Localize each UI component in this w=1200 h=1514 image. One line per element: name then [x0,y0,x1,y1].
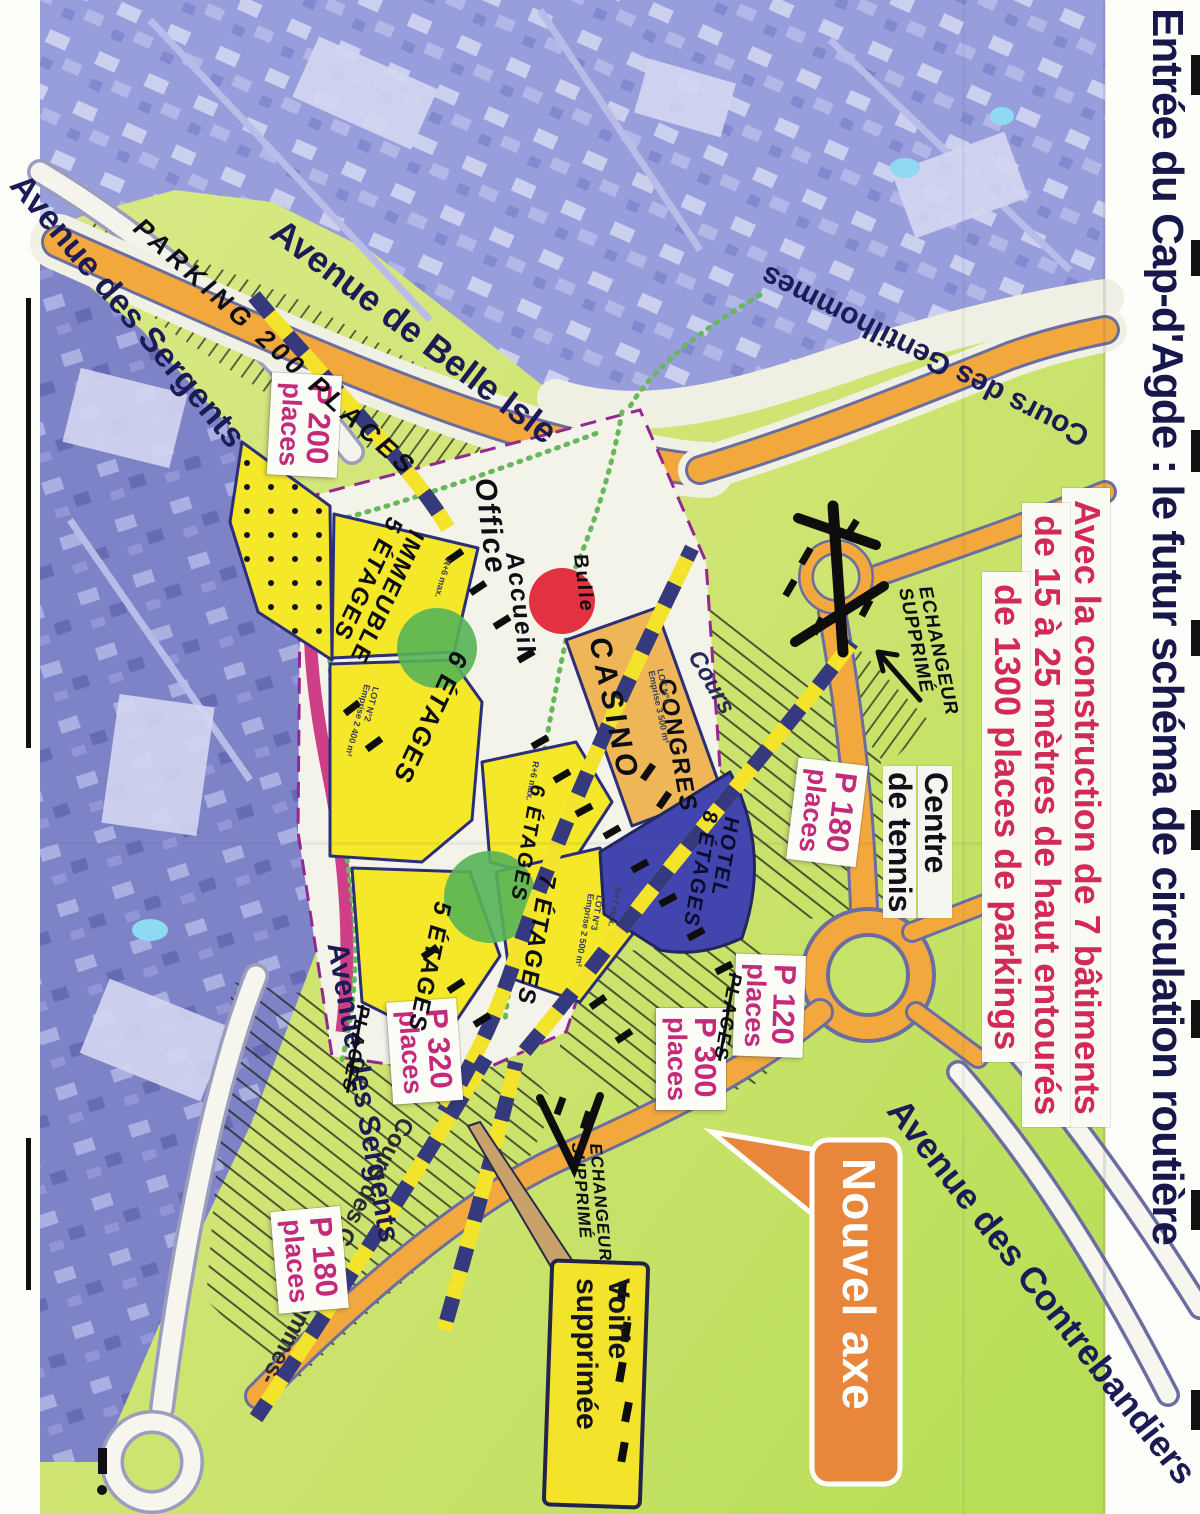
voirie-supprimee-label: Voirie supprimée [571,1278,634,1430]
centre-tennis-line1: Centre [918,766,952,918]
parking-sticker-p180-south: P 180 places [270,1206,349,1314]
centre-tennis-label: Centre de tennis [881,766,952,918]
parking-sticker-p180-north: P 180 places [786,757,868,867]
nouvel-axe-label: Nouvel axe [832,1158,886,1411]
right-edge-marks [1191,55,1200,1430]
banner-line3: de 1300 places de parkings [982,572,1030,1062]
parking-sticker-p120: P 120 places [732,954,806,1058]
page-title: Entrée du Cap-d'Agde : le futur schéma d… [1142,8,1192,1245]
scanned-map-page: Avenue de Belle Isle Avenue des Sergents… [0,0,1200,1514]
centre-tennis-line2: de tennis [883,766,917,918]
